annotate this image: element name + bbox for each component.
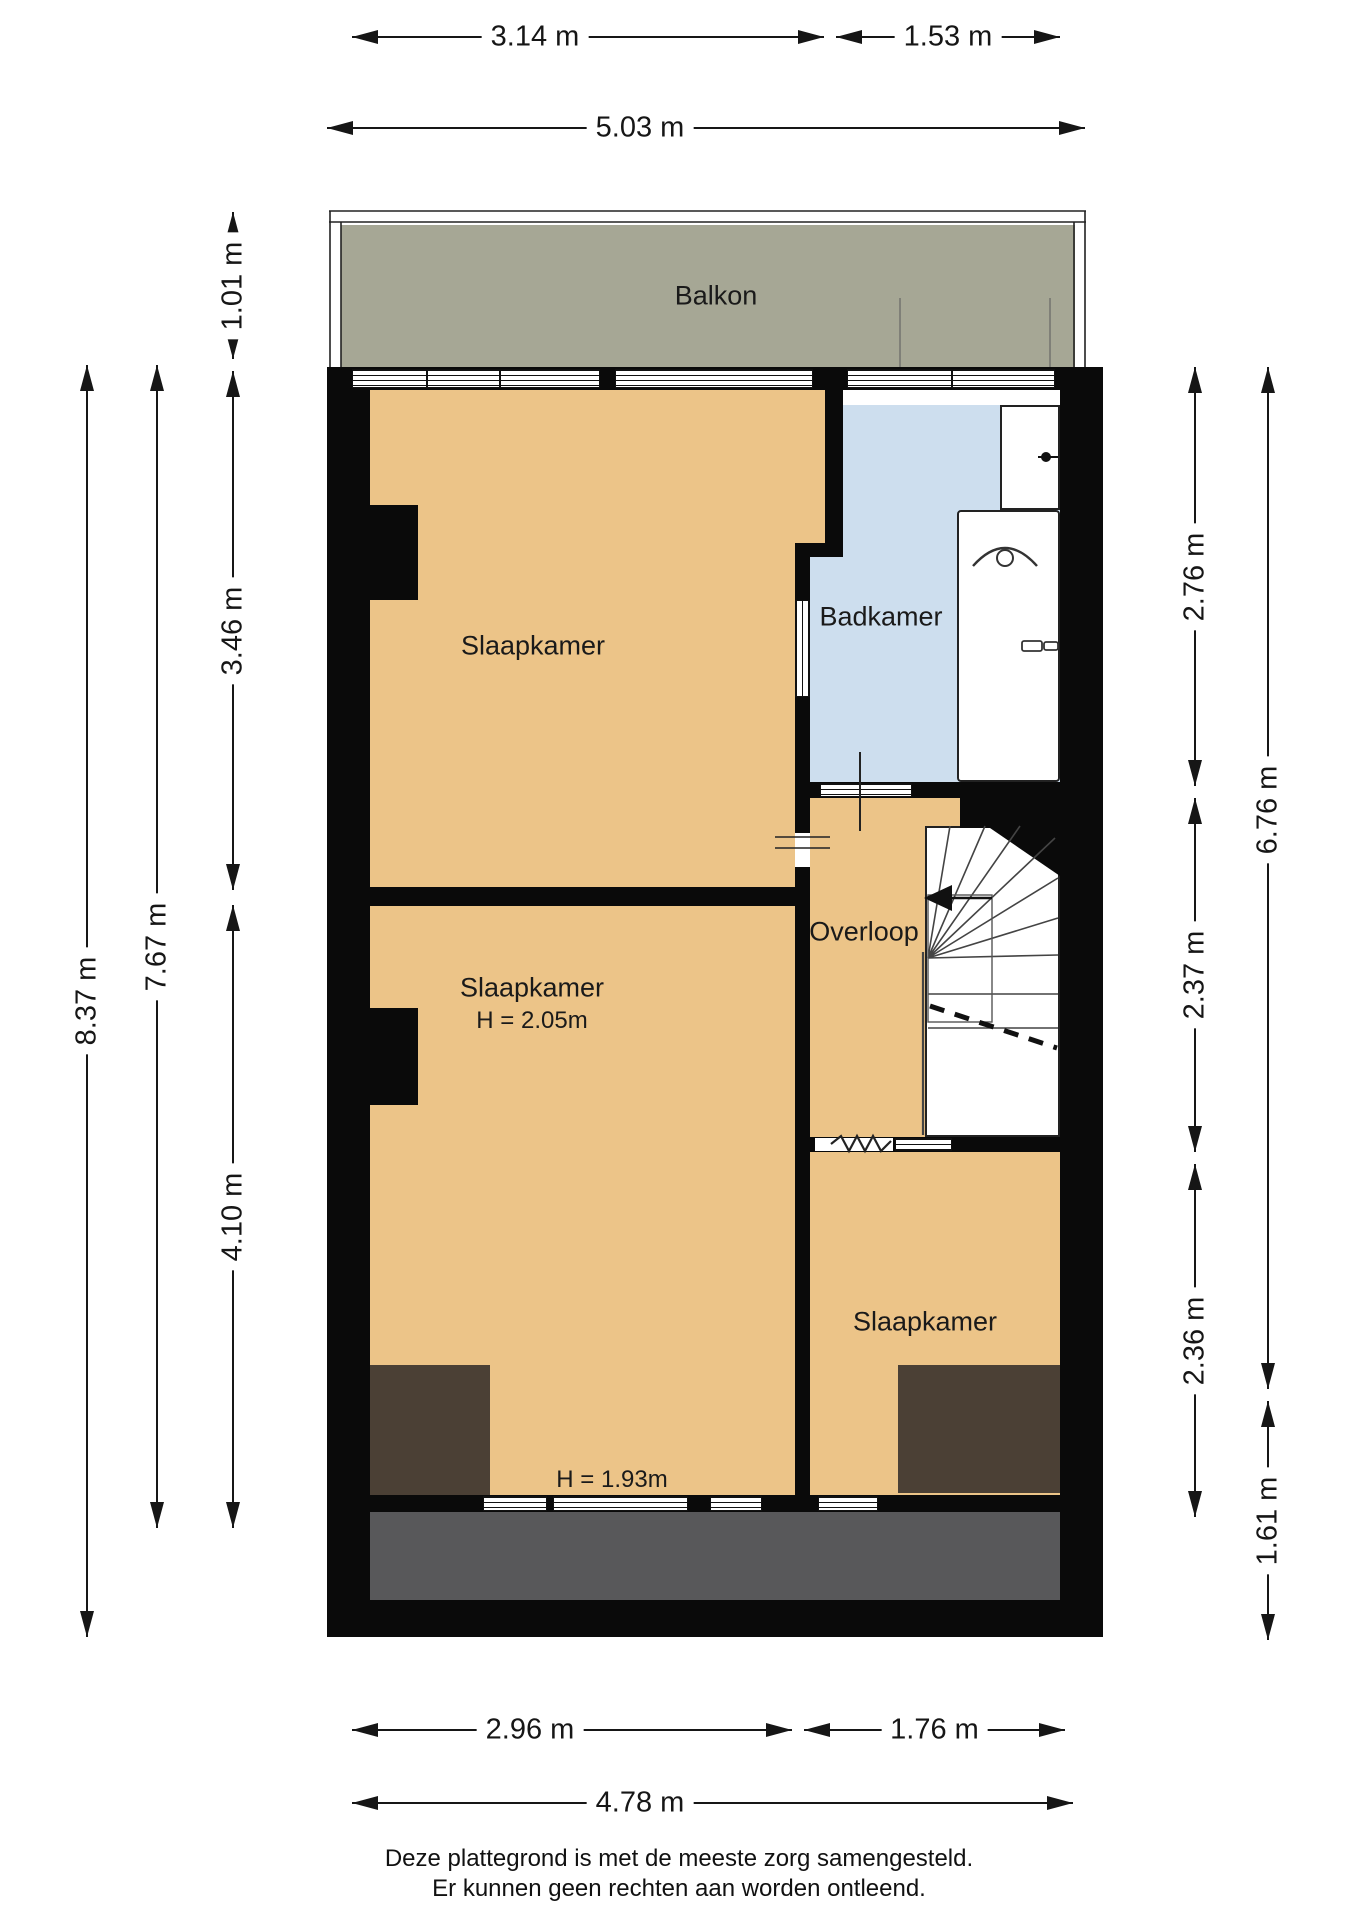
arrowhead-right-icon [798, 30, 824, 44]
arrowhead-up-icon [226, 371, 240, 397]
dim-top-1: 3.14 m [482, 21, 589, 54]
dim-right-4-line [1267, 367, 1269, 1389]
dim-top-3-line [327, 127, 1085, 129]
dim-bottom-3-line [352, 1802, 1073, 1804]
dim-top-3: 5.03 m [587, 112, 694, 145]
arrowhead-left-icon [836, 30, 862, 44]
bathtub-tap-icon [973, 548, 1058, 651]
washbasin-tap-icon [1038, 453, 1058, 461]
dim-left-2: 3.46 m [217, 577, 250, 684]
badkamer-label: Badkamer [819, 602, 942, 633]
dim-right-3: 2.36 m [1179, 1287, 1212, 1394]
arrowhead-down-icon [226, 864, 240, 890]
arrowhead-left-icon [352, 30, 378, 44]
slaapkamer-1-label: Slaapkamer [461, 631, 605, 662]
arrowhead-left-icon [804, 1723, 830, 1737]
zigzag-opening-icon [831, 1136, 891, 1151]
slaapkamer-3-label: Slaapkamer [853, 1307, 997, 1338]
dim-top-2: 1.53 m [895, 21, 1002, 54]
arrowhead-up-icon [1188, 1164, 1202, 1190]
arrowhead-up-icon [1261, 367, 1275, 393]
dim-bottom-1: 2.96 m [477, 1714, 584, 1747]
height-note: H = 1.93m [556, 1466, 667, 1494]
arrowhead-up-icon [1261, 1401, 1275, 1427]
dim-right-1: 2.76 m [1179, 523, 1212, 630]
arrowhead-up-icon [150, 365, 164, 391]
dim-left-1: 1.01 m [217, 232, 250, 339]
floorplan-canvas: Deze plattegrond is met de meeste zorg s… [0, 0, 1358, 1920]
dim-left-3: 4.10 m [217, 1163, 250, 1270]
arrowhead-up-icon [1188, 798, 1202, 824]
arrowhead-right-icon [1047, 1796, 1073, 1810]
dim-bottom-2: 1.76 m [881, 1714, 988, 1747]
dim-left-5: 8.37 m [71, 948, 104, 1055]
arrowhead-down-icon [1261, 1614, 1275, 1640]
dim-right-4: 6.76 m [1252, 757, 1285, 864]
dim-bottom-3: 4.78 m [587, 1787, 694, 1820]
arrowhead-down-icon [226, 1502, 240, 1528]
dim-right-2: 2.37 m [1179, 922, 1212, 1029]
arrowhead-down-icon [1188, 760, 1202, 786]
arrowhead-left-icon [352, 1796, 378, 1810]
footer-disclaimer-line1: Deze plattegrond is met de meeste zorg s… [385, 1845, 973, 1873]
arrowhead-right-icon [766, 1723, 792, 1737]
arrowhead-left-icon [352, 1723, 378, 1737]
overloop-label: Overloop [809, 917, 919, 948]
arrowhead-right-icon [1034, 30, 1060, 44]
arrowhead-left-icon [327, 121, 353, 135]
dim-right-5: 1.61 m [1252, 1467, 1285, 1574]
arrowhead-down-icon [80, 1611, 94, 1637]
balkon-label: Balkon [675, 281, 758, 312]
arrowhead-down-icon [1261, 1363, 1275, 1389]
overloop-door-icon [775, 837, 830, 848]
slaapkamer-2-height: H = 2.05m [476, 1007, 587, 1035]
stairs-headroom-dashed-line [930, 1006, 1057, 1048]
arrowhead-right-icon [1039, 1723, 1065, 1737]
arrowhead-up-icon [80, 365, 94, 391]
dim-left-4: 7.67 m [141, 893, 174, 1000]
arrowhead-down-icon [1188, 1491, 1202, 1517]
slaapkamer-2-label: Slaapkamer [460, 973, 604, 1004]
arrowhead-up-icon [226, 905, 240, 931]
arrowhead-down-icon [1188, 1126, 1202, 1152]
arrowhead-up-icon [1188, 367, 1202, 393]
staircase-icon [923, 826, 1058, 1135]
arrowhead-down-icon [150, 1502, 164, 1528]
footer-disclaimer-line2: Er kunnen geen rechten aan worden ontlee… [432, 1875, 926, 1903]
arrowhead-right-icon [1059, 121, 1085, 135]
